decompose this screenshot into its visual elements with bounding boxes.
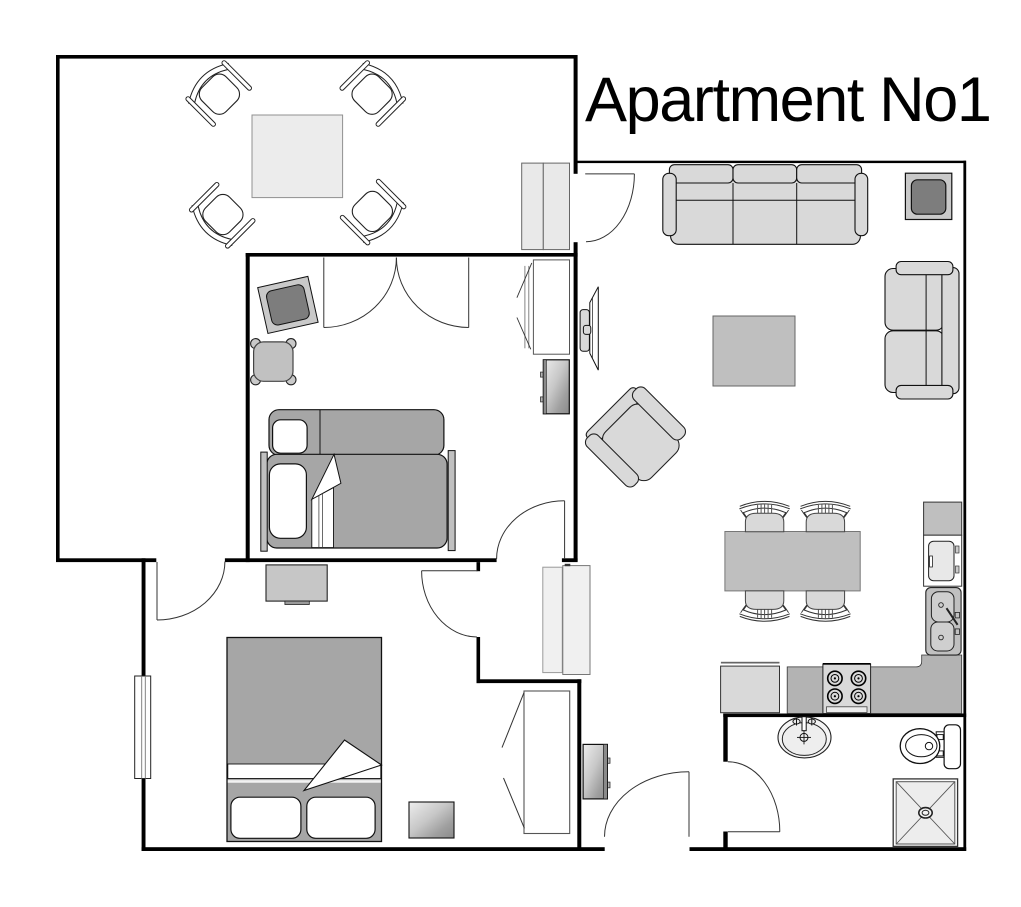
- svg-text:Apartment No1: Apartment No1: [585, 65, 991, 135]
